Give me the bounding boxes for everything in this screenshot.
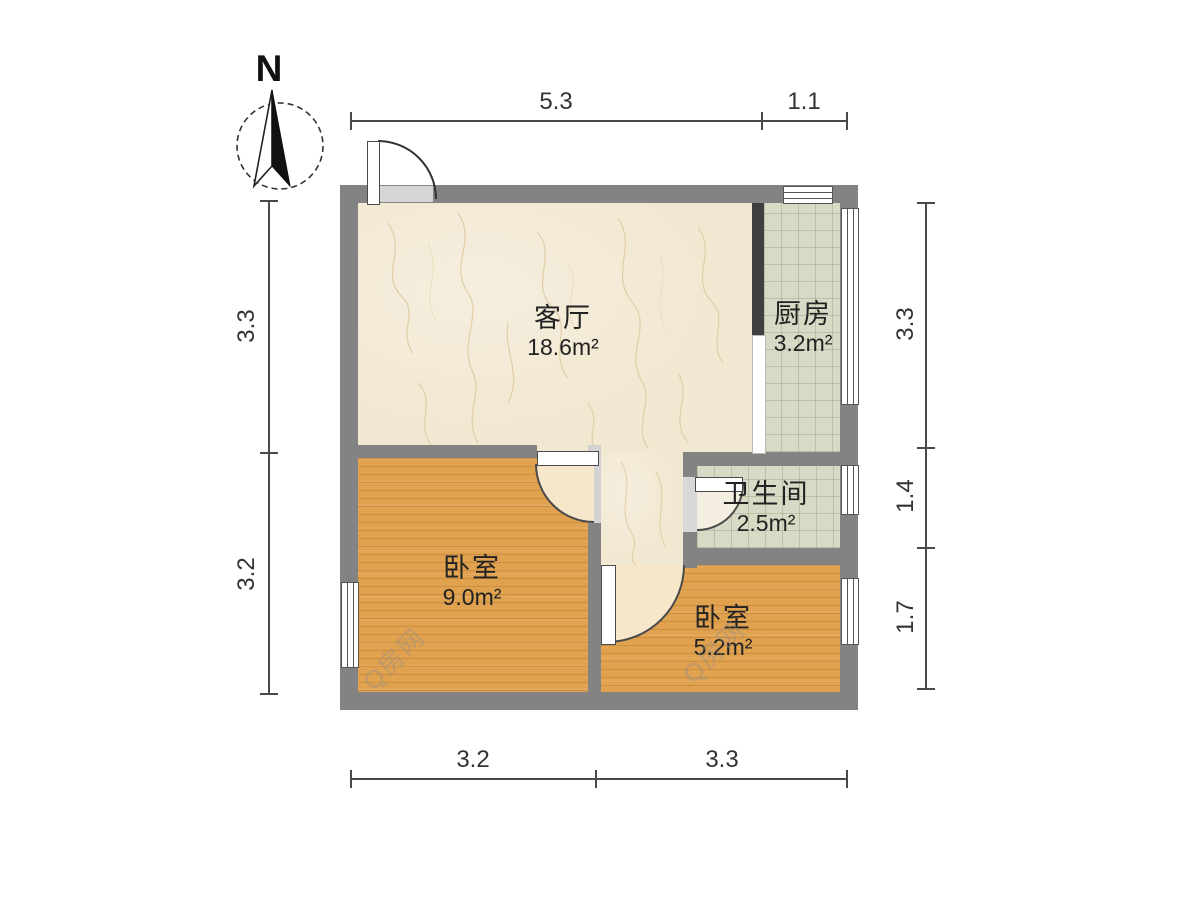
entry-door-opening [378,186,433,202]
window-mullion [784,192,832,193]
dimension-tick [260,452,278,454]
room-name: 客厅 [493,303,633,334]
dimension-value-bottom-left: 3.2 [423,746,523,774]
dimension-line-bottom [350,778,848,780]
wall-bathroom-top [683,452,858,466]
wall-bathroom-left-upper [683,452,697,477]
window-mullion [347,583,348,667]
dimension-value-right-upper: 3.3 [892,274,920,374]
window-mullion [853,466,854,514]
dimension-value-right-middle: 1.4 [892,446,920,546]
room-area: 2.5m² [696,510,836,536]
window-mullion [853,579,854,644]
dimension-value-left-upper: 3.3 [233,276,261,376]
dimension-value-bottom-right: 3.3 [672,746,772,774]
dimension-line-top [350,120,848,122]
dimension-tick [595,770,597,788]
dimension-value-top-right: 1.1 [754,88,854,116]
bedroom-second-door-leaf [601,565,616,645]
dimension-value-top-left: 5.3 [506,88,606,116]
window-mullion [784,198,832,199]
wall-living-bedroom-divider [358,445,537,458]
living-room-label: 客厅 18.6m² [493,303,633,360]
marble-texture [601,452,683,565]
window-mullion [847,466,848,514]
room-area: 18.6m² [493,334,633,360]
dimension-tick [260,693,278,695]
window-mullion [353,583,354,667]
floor-plan: N [0,0,1200,900]
dimension-value-left-lower: 3.2 [233,524,261,624]
compass-north-label: N [244,48,294,90]
wall-bottom [340,692,858,710]
dimension-line-right [925,202,927,690]
dimension-line-left [268,200,270,695]
entry-door-leaf [367,141,380,205]
hallway-floor [601,452,683,565]
dimension-tick [917,688,935,690]
dimension-tick [846,770,848,788]
dimension-tick [260,200,278,202]
room-name: 卧室 [402,553,542,584]
bathroom-label: 卫生间 2.5m² [696,479,836,536]
kitchen-window-top [783,186,833,204]
room-name: 卫生间 [696,479,836,510]
room-area: 3.2m² [733,330,873,356]
room-name: 厨房 [733,299,873,330]
dimension-tick [350,770,352,788]
bathroom-window [841,465,859,515]
dimension-tick [917,547,935,549]
bedroom-main-window [341,582,359,668]
compass-icon [225,85,340,200]
dimension-value-right-lower: 1.7 [892,567,920,667]
kitchen-label: 厨房 3.2m² [733,299,873,356]
dimension-tick [917,202,935,204]
dimension-tick [350,112,352,130]
wall-bathroom-bottom [683,548,858,565]
bedroom-main-door-leaf [537,451,599,466]
window-mullion [847,579,848,644]
bedroom-second-window [841,578,859,645]
